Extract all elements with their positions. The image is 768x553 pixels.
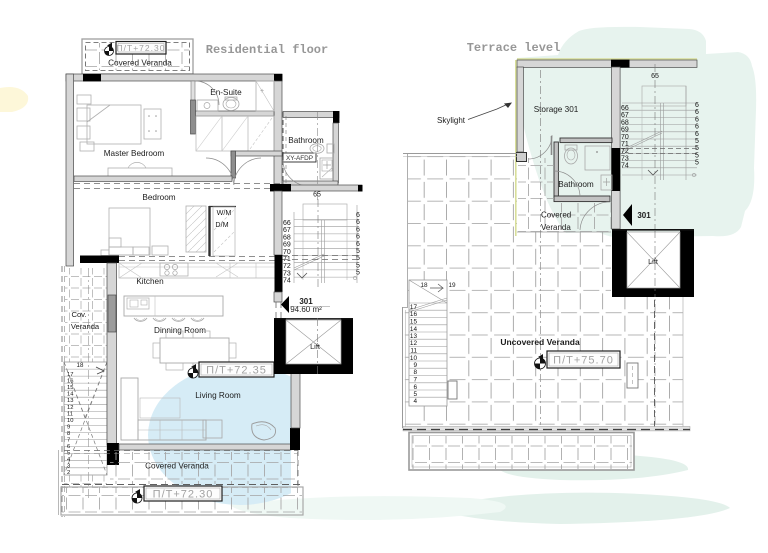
svg-text:Veranda: Veranda bbox=[541, 223, 571, 232]
svg-text:5: 5 bbox=[356, 262, 360, 269]
svg-text:5: 5 bbox=[695, 160, 699, 167]
svg-text:8: 8 bbox=[67, 431, 70, 437]
svg-text:13: 13 bbox=[67, 398, 73, 404]
svg-text:Lift: Lift bbox=[648, 257, 658, 266]
svg-text:69: 69 bbox=[621, 127, 629, 134]
svg-text:6: 6 bbox=[67, 444, 70, 450]
svg-text:18: 18 bbox=[77, 362, 84, 369]
svg-text:Master Bedroom: Master Bedroom bbox=[104, 149, 165, 158]
svg-text:6: 6 bbox=[356, 234, 360, 241]
svg-text:11: 11 bbox=[67, 411, 73, 417]
svg-text:En-Suite: En-Suite bbox=[210, 88, 242, 97]
svg-text:5: 5 bbox=[413, 391, 417, 398]
svg-text:W/M: W/M bbox=[217, 208, 232, 217]
svg-text:70: 70 bbox=[621, 134, 629, 141]
svg-text:74: 74 bbox=[621, 163, 629, 170]
svg-text:4: 4 bbox=[413, 398, 417, 405]
svg-text:6: 6 bbox=[356, 219, 360, 226]
svg-text:Covered: Covered bbox=[541, 211, 571, 220]
svg-text:7: 7 bbox=[413, 377, 417, 384]
svg-text:6: 6 bbox=[356, 241, 360, 248]
svg-text:6: 6 bbox=[413, 384, 417, 391]
svg-text:15: 15 bbox=[410, 319, 418, 326]
svg-text:6: 6 bbox=[695, 131, 699, 138]
svg-text:18: 18 bbox=[420, 282, 428, 289]
svg-text:69: 69 bbox=[283, 242, 291, 249]
svg-text:5: 5 bbox=[356, 270, 360, 277]
svg-text:Residential floor: Residential floor bbox=[206, 43, 328, 57]
svg-text:6: 6 bbox=[356, 212, 360, 219]
svg-text:6: 6 bbox=[356, 226, 360, 233]
svg-text:Veranda: Veranda bbox=[71, 322, 100, 331]
svg-text:70: 70 bbox=[283, 249, 291, 256]
svg-text:Π/T+72.35: Π/T+72.35 bbox=[206, 364, 267, 376]
svg-text:15: 15 bbox=[67, 385, 73, 391]
svg-text:Lift: Lift bbox=[310, 342, 320, 351]
svg-text:65: 65 bbox=[313, 192, 321, 199]
svg-text:+: + bbox=[260, 88, 264, 95]
svg-text:Π/T+72.30: Π/T+72.30 bbox=[117, 43, 166, 53]
svg-text:13: 13 bbox=[410, 333, 418, 340]
svg-text:8: 8 bbox=[413, 369, 417, 376]
svg-text:Bedroom: Bedroom bbox=[142, 193, 175, 202]
svg-text:72: 72 bbox=[283, 263, 291, 270]
svg-text:68: 68 bbox=[283, 234, 291, 241]
svg-text:5: 5 bbox=[695, 138, 699, 145]
svg-text:3: 3 bbox=[67, 464, 70, 470]
svg-text:9: 9 bbox=[67, 424, 70, 430]
svg-text:5: 5 bbox=[356, 248, 360, 255]
svg-text:301: 301 bbox=[637, 211, 651, 220]
svg-text:17: 17 bbox=[410, 304, 418, 311]
svg-text:5: 5 bbox=[695, 145, 699, 152]
svg-text:Skylight: Skylight bbox=[437, 116, 466, 125]
svg-text:Bathroom: Bathroom bbox=[558, 180, 594, 189]
svg-text:5: 5 bbox=[695, 152, 699, 159]
svg-text:73: 73 bbox=[283, 270, 291, 277]
svg-text:6: 6 bbox=[695, 102, 699, 109]
svg-text:66: 66 bbox=[621, 105, 629, 112]
svg-text:66: 66 bbox=[283, 220, 291, 227]
svg-text:16: 16 bbox=[410, 311, 418, 318]
svg-text:Covered Veranda: Covered Veranda bbox=[108, 59, 172, 68]
svg-text:72: 72 bbox=[621, 148, 629, 155]
svg-text:Π/T+75.70: Π/T+75.70 bbox=[553, 354, 614, 366]
svg-text:17: 17 bbox=[67, 372, 73, 378]
svg-text:16: 16 bbox=[67, 379, 73, 385]
svg-text:Covered Veranda: Covered Veranda bbox=[145, 462, 209, 471]
svg-text:12: 12 bbox=[67, 405, 73, 411]
svg-text:12: 12 bbox=[410, 340, 418, 347]
svg-text:9: 9 bbox=[413, 362, 417, 369]
svg-text:7: 7 bbox=[67, 438, 70, 444]
svg-text:Living Room: Living Room bbox=[195, 391, 241, 400]
svg-text:Cov.: Cov. bbox=[71, 310, 86, 319]
svg-text:6: 6 bbox=[695, 116, 699, 123]
svg-text:6: 6 bbox=[695, 109, 699, 116]
svg-text:Terrace level: Terrace level bbox=[467, 41, 561, 55]
svg-text:Dinning Room: Dinning Room bbox=[154, 326, 206, 335]
svg-text:11: 11 bbox=[410, 348, 417, 355]
svg-text:XY-AFDP: XY-AFDP bbox=[286, 155, 313, 162]
svg-text:D/M: D/M bbox=[215, 220, 228, 229]
svg-text:19: 19 bbox=[448, 282, 456, 289]
svg-text:5: 5 bbox=[356, 255, 360, 262]
svg-text:67: 67 bbox=[283, 227, 291, 234]
svg-text:67: 67 bbox=[621, 112, 629, 119]
svg-text:Uncovered Veranda: Uncovered Veranda bbox=[500, 337, 580, 347]
svg-text:10: 10 bbox=[410, 355, 418, 362]
svg-text:71: 71 bbox=[621, 141, 629, 148]
svg-text:10: 10 bbox=[67, 418, 73, 424]
svg-text:14: 14 bbox=[67, 392, 74, 398]
svg-text:74: 74 bbox=[283, 278, 291, 285]
svg-text:6: 6 bbox=[695, 124, 699, 131]
svg-text:14: 14 bbox=[410, 326, 418, 333]
svg-text:73: 73 bbox=[621, 155, 629, 162]
svg-text:Kitchen: Kitchen bbox=[136, 277, 164, 286]
svg-text:68: 68 bbox=[621, 119, 629, 126]
svg-text:Π/T+72.30: Π/T+72.30 bbox=[153, 488, 214, 500]
